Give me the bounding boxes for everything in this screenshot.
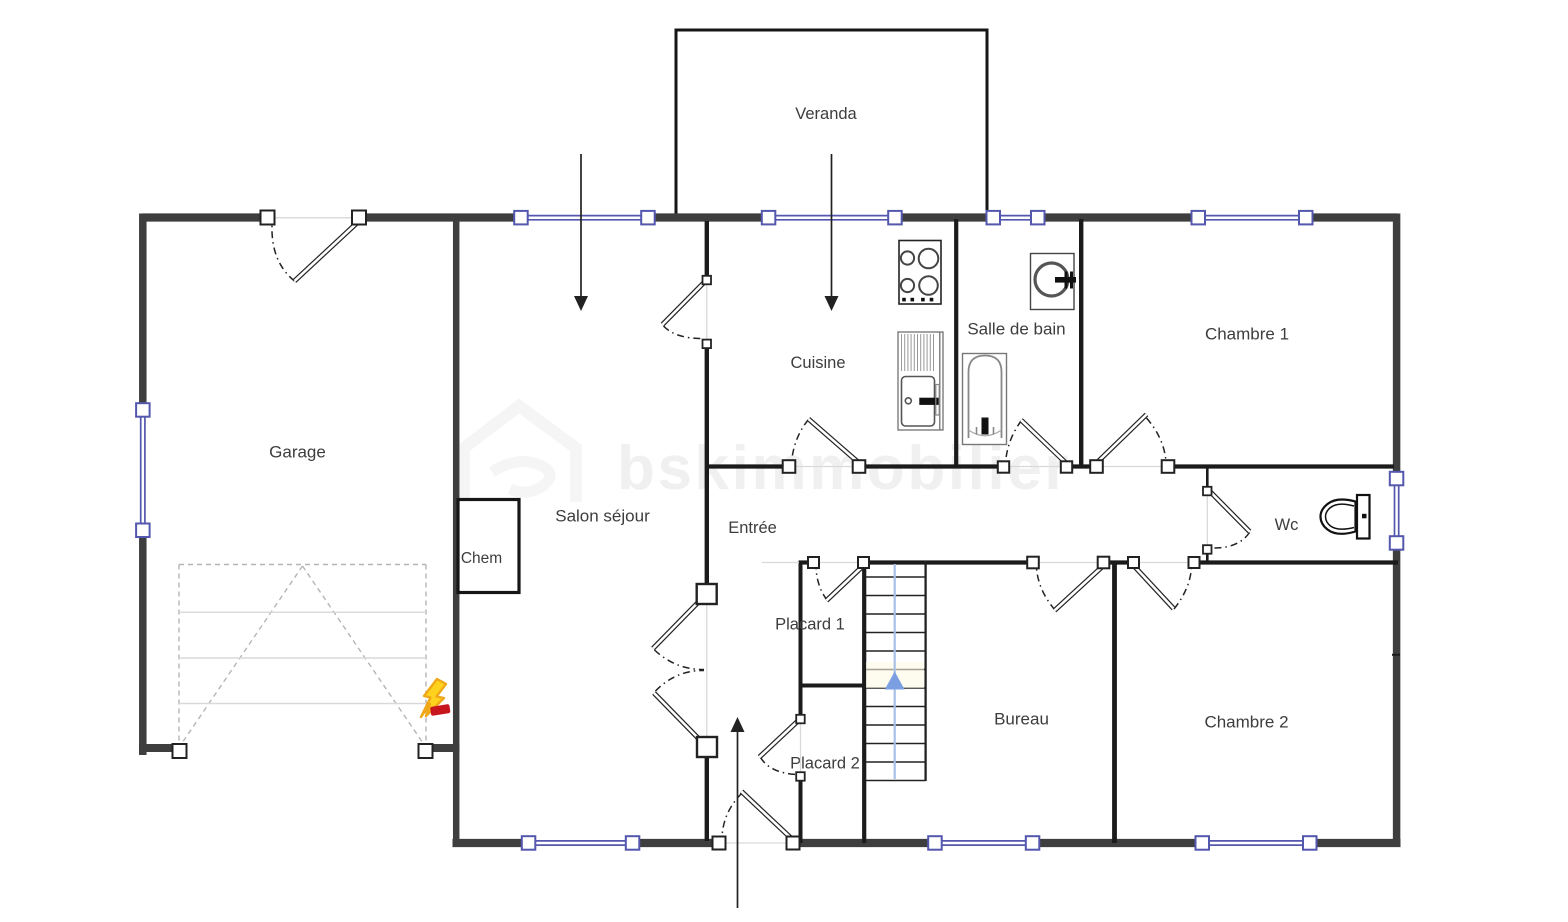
svg-text:Cuisine: Cuisine xyxy=(790,354,845,372)
svg-text:Salle de bain: Salle de bain xyxy=(967,320,1065,339)
svg-text:Entrée: Entrée xyxy=(728,519,777,537)
svg-text:Bureau: Bureau xyxy=(994,710,1049,729)
svg-text:Salon séjour: Salon séjour xyxy=(555,507,650,526)
svg-text:Placard 1: Placard 1 xyxy=(775,616,845,634)
svg-text:Chambre 1: Chambre 1 xyxy=(1205,325,1289,344)
svg-text:Wc: Wc xyxy=(1275,516,1299,534)
svg-text:Chem: Chem xyxy=(461,550,502,567)
svg-text:Garage: Garage xyxy=(269,443,326,462)
svg-text:Veranda: Veranda xyxy=(795,105,857,123)
svg-text:Chambre 2: Chambre 2 xyxy=(1204,713,1288,732)
